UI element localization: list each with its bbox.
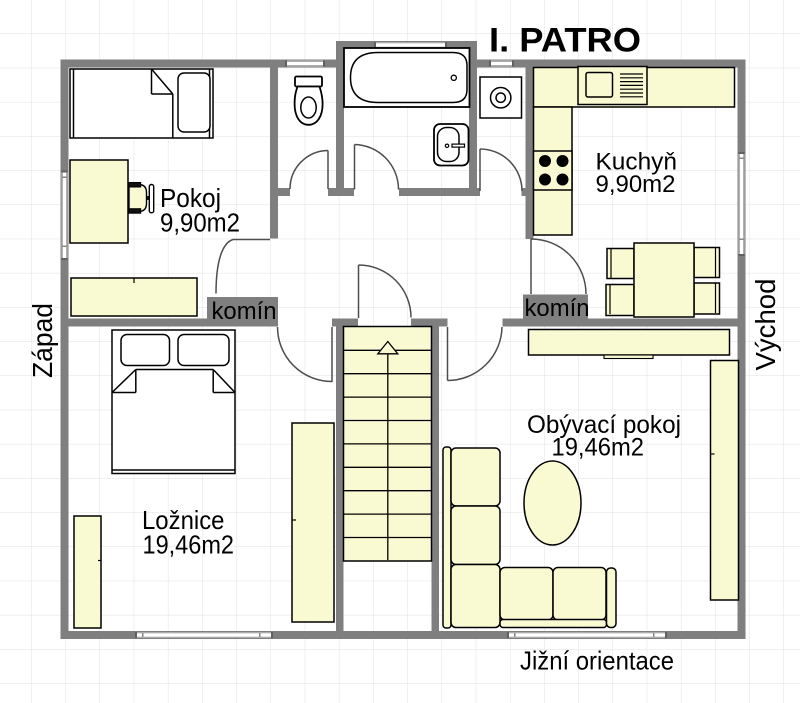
svg-text:komín: komín: [525, 295, 590, 322]
svg-text:Východ: Východ: [750, 279, 781, 371]
svg-text:I. PATRO: I. PATRO: [489, 21, 641, 59]
svg-text:Jižní orientace: Jižní orientace: [520, 646, 674, 676]
svg-text:9,90m2: 9,90m2: [596, 171, 676, 198]
svg-text:19,46m2: 19,46m2: [552, 434, 645, 462]
svg-text:komín: komín: [212, 298, 277, 325]
svg-text:Západ: Západ: [27, 303, 58, 378]
svg-text:9,90m2: 9,90m2: [160, 209, 240, 237]
svg-text:19,46m2: 19,46m2: [143, 530, 235, 560]
